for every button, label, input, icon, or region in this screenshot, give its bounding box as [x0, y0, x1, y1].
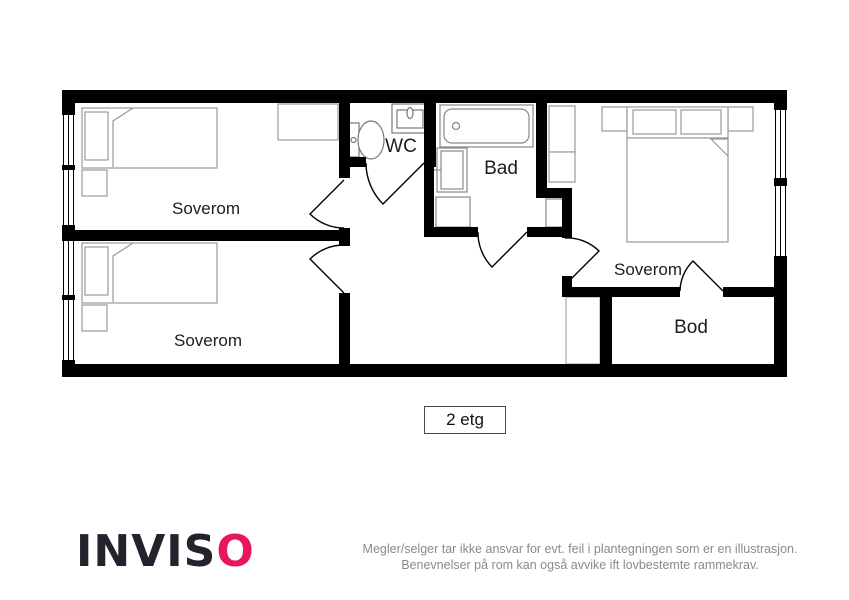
wardrobe-icon — [278, 104, 338, 140]
bathtub-drain-icon — [453, 123, 460, 130]
pillow-icon — [681, 110, 721, 134]
room-label-soverom-top-left: Soverom — [146, 199, 266, 219]
window-icon — [63, 115, 75, 165]
cabinet-icon — [436, 197, 470, 227]
nightstand-icon — [602, 107, 627, 131]
wall-segment — [62, 360, 75, 377]
door-icon — [478, 232, 527, 267]
wardrobe-icon — [549, 152, 575, 182]
bed-icon — [627, 138, 728, 242]
pillow-icon — [633, 110, 676, 134]
door-icon — [366, 163, 424, 204]
window-icon — [63, 240, 75, 295]
wall-segment — [339, 293, 350, 364]
wall-segment — [62, 230, 350, 241]
pillow-icon — [85, 247, 108, 295]
shower-inner-icon — [441, 151, 463, 189]
window-icon — [63, 170, 75, 225]
window-icon — [775, 110, 787, 178]
door-icon — [310, 245, 344, 293]
floorplan-page: Soverom Soverom WC Bad Soverom Bod 2 etg… — [0, 0, 849, 600]
nightstand-icon — [82, 305, 107, 331]
window-icon — [775, 186, 787, 256]
sink-tap-icon — [407, 108, 413, 119]
wall-segment — [774, 90, 787, 110]
inviso-logo: INVISO — [76, 527, 255, 577]
wall-segment — [350, 157, 366, 167]
wall-segment — [62, 165, 75, 170]
wall-segment — [774, 178, 787, 186]
logo-text-dark: INVIS — [76, 526, 216, 577]
nightstand-icon — [82, 170, 107, 196]
wall-segment — [562, 287, 680, 297]
wall-segment — [536, 103, 547, 198]
floor-label-box: 2 etg — [424, 406, 506, 434]
disclaimer-line-1: Megler/selger tar ikke ansvar for evt. f… — [350, 541, 810, 557]
wall-segment — [339, 228, 350, 246]
wall-segment — [600, 287, 612, 364]
room-label-soverom-right: Soverom — [588, 260, 708, 280]
wall-segment — [562, 188, 572, 238]
pillow-icon — [85, 112, 108, 160]
wall-segment — [723, 287, 787, 297]
nightstand-icon — [728, 107, 753, 131]
wall-segment — [62, 295, 75, 300]
closet-niche-icon — [566, 297, 600, 364]
wall-segment — [62, 90, 787, 103]
door-icon — [310, 180, 344, 228]
logo-o-accent: O — [216, 526, 254, 577]
room-label-wc: WC — [374, 137, 428, 157]
wall-segment — [62, 364, 787, 377]
wall-segment — [339, 103, 350, 178]
room-label-soverom-bottom-left: Soverom — [148, 331, 268, 351]
room-label-bod: Bod — [663, 318, 719, 338]
wall-segment — [774, 256, 787, 377]
room-label-bad: Bad — [473, 159, 529, 179]
wardrobe-icon — [549, 106, 575, 152]
floor-label: 2 etg — [446, 410, 484, 430]
wall-segment — [62, 90, 75, 115]
wall-segment — [424, 227, 478, 237]
wall-segment — [424, 157, 434, 237]
disclaimer-line-2: Benevnelser på rom kan også avvike ift l… — [350, 557, 810, 573]
window-icon — [63, 300, 75, 360]
toilet-button-icon — [351, 138, 356, 143]
disclaimer-text: Megler/selger tar ikke ansvar for evt. f… — [350, 541, 810, 573]
